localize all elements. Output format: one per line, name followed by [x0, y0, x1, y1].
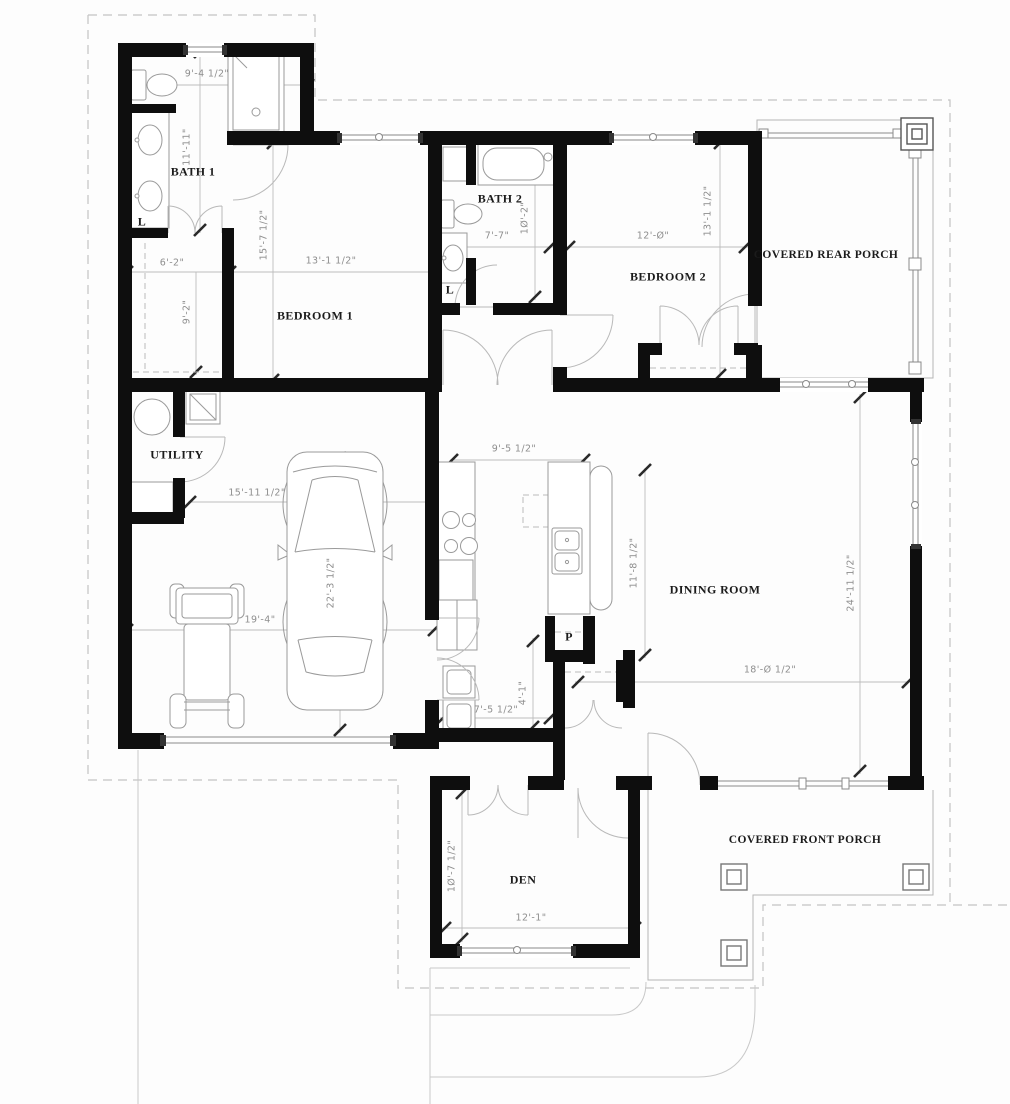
dim-bedroom2-length: 13'-1 1/2" — [703, 186, 714, 237]
room-label-rear-porch: COVERED REAR PORCH — [754, 249, 899, 261]
washer-dryer-icon — [443, 666, 475, 732]
room-label-bath2: BATH 2 — [478, 192, 523, 207]
room-label-den: DEN — [510, 873, 537, 888]
room-label-bedroom2: BEDROOM 2 — [630, 270, 706, 285]
utility-appliance-icon — [131, 482, 173, 516]
closet-label-linen-bath1: L — [138, 215, 146, 230]
dim-mud-width: 7'-5 1/2" — [474, 705, 518, 716]
dim-bedroom1-width: 13'-1 1/2" — [306, 256, 357, 267]
room-label-bedroom1: BEDROOM 1 — [277, 309, 353, 324]
dim-kitchen-width: 9'-5 1/2" — [492, 444, 536, 455]
room-label-utility: UTILITY — [150, 448, 203, 463]
dim-mud-length: 4'-1" — [518, 681, 529, 706]
window-dining-porch — [780, 378, 868, 392]
island-sink-icon — [552, 528, 582, 574]
floor-plan-drawing — [0, 0, 1010, 1104]
kitchen-counter-icon — [437, 462, 475, 606]
utility-sink-icon — [186, 390, 220, 424]
closet-label-pantry: P — [565, 630, 573, 645]
front-porch-columns-icon — [721, 864, 929, 966]
dim-bath1-width: 9'-4 1/2" — [185, 69, 229, 80]
dim-bath2-width: 7'-7" — [485, 231, 510, 242]
toilet2-icon — [441, 200, 482, 228]
dim-den-length: 1Ø'-7 1/2" — [447, 840, 458, 892]
bath2-linen-box-icon — [443, 147, 468, 181]
dim-dining-width: 18'-Ø 1/2" — [744, 665, 796, 676]
front-porch-beam — [718, 778, 888, 789]
dim-garage-length: 22'-3 1/2" — [326, 558, 337, 609]
floor-plan-sheet: BATH 1 BEDROOM 1 BATH 2 BEDROOM 2 COVERE… — [0, 0, 1010, 1104]
window-dining-east — [910, 419, 922, 549]
front-porch-outline — [648, 790, 933, 980]
bath1-vanity-sinks-icon — [131, 112, 169, 228]
dim-garage-width: 19'-4" — [245, 615, 276, 626]
closet-label-linen-hall: L — [446, 283, 454, 298]
garage-door — [160, 735, 396, 746]
window-bedroom2 — [609, 131, 698, 145]
dim-closet-length: 9'-2" — [182, 300, 193, 325]
toilet-icon — [131, 70, 177, 100]
dim-den-width: 12'-1" — [516, 913, 547, 924]
lawn-tractor-icon — [170, 584, 244, 728]
room-label-front-porch: COVERED FRONT PORCH — [729, 834, 881, 846]
shower-icon — [228, 49, 284, 135]
dim-bath1-length: 11'-11" — [182, 128, 193, 165]
dim-bath2-length: 1Ø'-2" — [520, 202, 531, 234]
dim-bedroom2-width: 12'-Ø" — [637, 231, 669, 242]
dim-garage-width-upper: 15'-11 1/2" — [228, 488, 285, 499]
rear-porch-column-icon — [901, 118, 933, 150]
water-heater-icon — [134, 399, 170, 435]
bath2-sink-icon — [441, 233, 467, 283]
dim-dining-length: 24'-11 1/2" — [846, 554, 857, 611]
window-bath1 — [183, 43, 227, 57]
dim-kitchen-length: 11'-8 1/2" — [629, 538, 640, 589]
dim-closet-width: 6'-2" — [160, 258, 185, 269]
dim-bedroom1-length: 15'-7 1/2" — [259, 210, 270, 261]
room-label-bath1: BATH 1 — [171, 165, 216, 180]
window-den — [457, 944, 576, 958]
bathtub-icon — [478, 143, 555, 185]
room-label-dining: DINING ROOM — [670, 583, 761, 598]
window-bedroom1 — [337, 131, 423, 145]
